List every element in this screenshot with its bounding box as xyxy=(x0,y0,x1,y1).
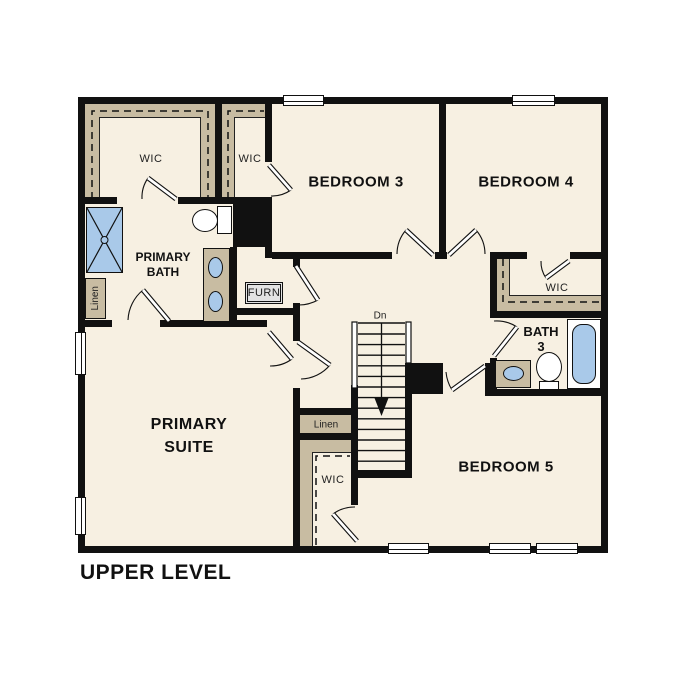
primary-bath-line1: PRIMARY xyxy=(136,250,191,265)
window-pane-line xyxy=(81,333,82,374)
wall xyxy=(85,320,112,327)
linen-closet-left: Linen xyxy=(85,278,106,319)
shower xyxy=(86,207,123,273)
wall xyxy=(300,408,355,415)
window xyxy=(388,543,429,554)
bathtub xyxy=(572,324,596,384)
bath3-line2: 3 xyxy=(523,339,558,354)
toilet-bowl xyxy=(536,352,562,382)
wall xyxy=(351,470,412,478)
room-label-wic-primary: WIC xyxy=(140,153,163,165)
room-label-bath-3: BATH 3 xyxy=(523,324,558,354)
wall xyxy=(215,104,222,200)
window xyxy=(283,95,324,106)
floor-plan: Linen FURN xyxy=(0,0,687,687)
wall xyxy=(490,389,601,396)
window-pane-line xyxy=(537,549,577,550)
room-label-linen-center: Linen xyxy=(314,420,338,431)
window-pane-line xyxy=(81,498,82,534)
wall xyxy=(570,252,601,259)
primary-suite-line1: PRIMARY xyxy=(151,413,228,436)
page-title: UPPER LEVEL xyxy=(80,561,231,585)
room-label-bedroom-4: BEDROOM 4 xyxy=(478,174,573,191)
wall xyxy=(237,308,300,315)
furnace-label: FURN xyxy=(247,284,281,302)
bath3-line1: BATH xyxy=(523,324,558,339)
wall xyxy=(485,363,492,396)
wall xyxy=(435,252,447,259)
room-label-bedroom-3: BEDROOM 3 xyxy=(308,174,403,191)
wall xyxy=(497,311,601,318)
vanity-sink xyxy=(208,257,223,278)
wall xyxy=(272,252,392,259)
wall xyxy=(300,433,355,440)
vanity-sink xyxy=(208,291,223,312)
wall xyxy=(293,252,300,267)
wall xyxy=(85,197,117,204)
toilet-tank xyxy=(217,206,232,234)
window xyxy=(512,95,555,106)
window xyxy=(75,332,86,375)
furnace: FURN xyxy=(245,282,283,304)
room-label-wic-bedroom5: WIC xyxy=(322,474,345,486)
chase-block xyxy=(233,203,272,247)
wall xyxy=(230,247,237,322)
chase-block xyxy=(405,363,443,394)
vanity-sink xyxy=(503,366,524,381)
room-label-primary-suite: PRIMARY SUITE xyxy=(151,413,228,459)
primary-bath-line2: BATH xyxy=(136,265,191,280)
room-label-primary-bath: PRIMARY BATH xyxy=(136,250,191,280)
toilet-bowl xyxy=(192,209,218,232)
toilet-base xyxy=(539,381,559,390)
wall xyxy=(351,385,358,505)
wic-bedroom5-shelving-top xyxy=(300,440,355,452)
window xyxy=(75,497,86,535)
room-label-wic-bedroom3: WIC xyxy=(239,153,262,165)
window-pane-line xyxy=(513,101,554,102)
stairs-down-label: Dn xyxy=(374,311,387,322)
wall xyxy=(78,97,85,553)
wic-bedroom5-interior xyxy=(312,452,351,546)
wic-bedroom5-shelving-left xyxy=(300,440,312,546)
wall xyxy=(265,104,272,162)
wall xyxy=(439,104,446,259)
wall xyxy=(405,394,412,478)
window-pane-line xyxy=(490,549,530,550)
window-pane-line xyxy=(389,549,428,550)
wall xyxy=(490,258,497,318)
primary-suite-line2: SUITE xyxy=(151,436,228,459)
wall xyxy=(293,303,300,341)
room-label-bedroom-5: BEDROOM 5 xyxy=(458,459,553,476)
room-label-wic-bedroom4: WIC xyxy=(546,282,569,294)
wall xyxy=(601,97,608,553)
linen-left-label: Linen xyxy=(90,286,101,310)
wall xyxy=(293,388,300,546)
window-pane-line xyxy=(284,101,323,102)
window xyxy=(536,543,578,554)
window xyxy=(489,543,531,554)
